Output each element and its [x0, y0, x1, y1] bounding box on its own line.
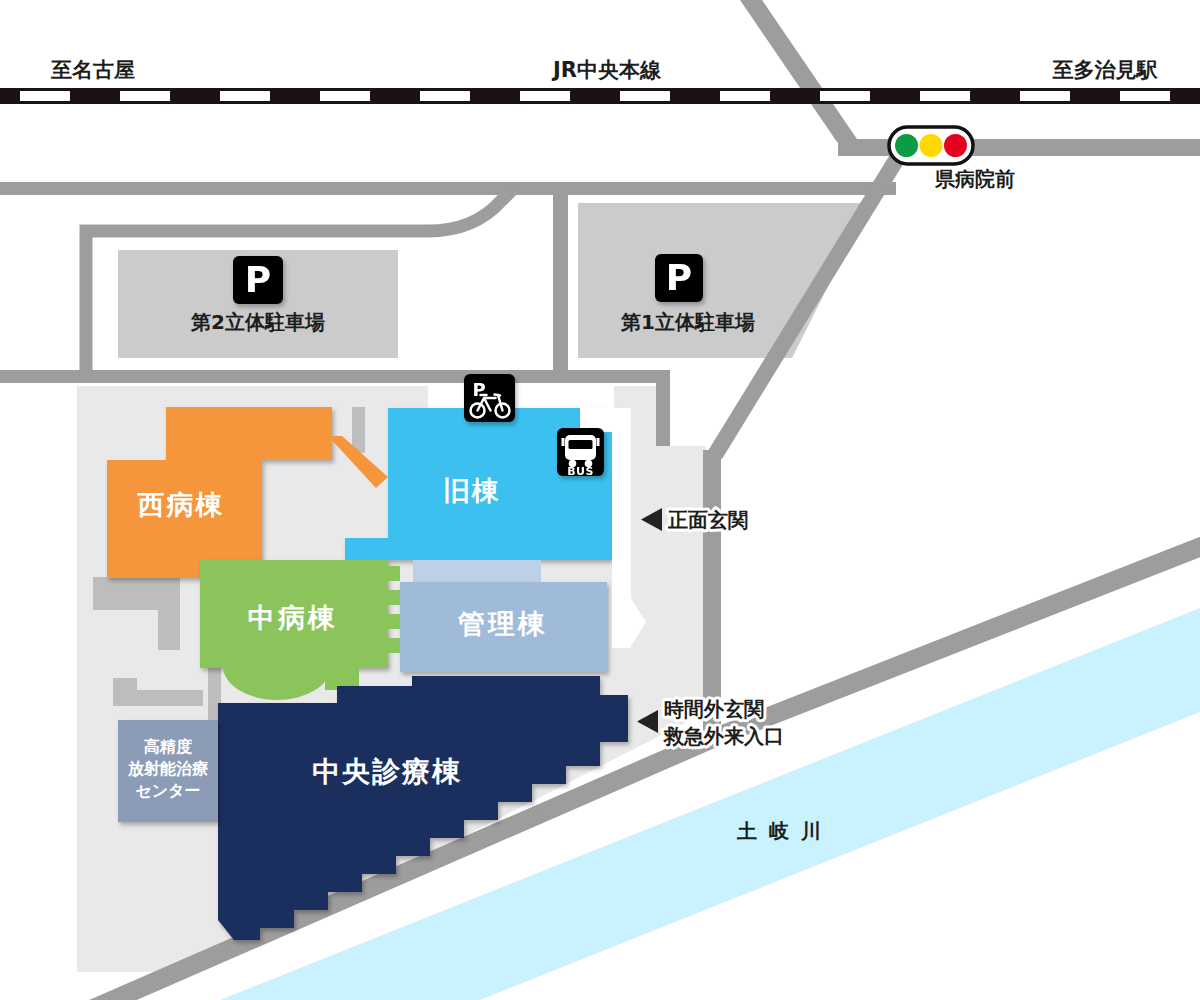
parking2-icon-letter: P	[245, 259, 271, 300]
middle-ward-tooth-2	[386, 590, 400, 605]
label-old-building: 旧棟	[443, 475, 501, 506]
building-admin-annex	[413, 560, 541, 582]
signal-yellow-lamp	[920, 134, 943, 157]
parking2-icon: P	[233, 256, 283, 304]
label-radiation-center-line2: 放射能治療	[127, 759, 209, 778]
aux-building-2	[93, 577, 180, 610]
label-middle-ward: 中病棟	[248, 602, 338, 633]
bicycle-parking-icon: P	[464, 374, 515, 422]
label-radiation-center-line3: センター	[135, 781, 200, 800]
bus-mirror-left	[562, 438, 565, 446]
signal-green-lamp	[895, 134, 918, 157]
label-parking-1: 第1立体駐車場	[620, 310, 755, 334]
parking1-icon-letter: P	[666, 257, 692, 298]
road-campus-north	[0, 370, 670, 383]
aux-building-3	[158, 610, 180, 650]
road-north-horizontal	[0, 182, 896, 195]
road-between-parkings	[553, 182, 568, 383]
label-kenbyoin-mae: 県病院前	[934, 167, 1015, 191]
aux-building-1	[352, 407, 365, 453]
hospital-access-map: P P P BUS 至名古屋 JR中央本線 至多治見駅 県病院前 第2立体駐車場…	[0, 0, 1200, 1000]
road-campus-north-stub	[656, 370, 670, 446]
middle-ward-tooth-3	[386, 614, 400, 629]
middle-ward-tooth-4	[386, 638, 400, 653]
bus-stop-icon-label: BUS	[567, 465, 594, 478]
aux-building-4	[113, 678, 137, 706]
label-central-clinic: 中央診療棟	[312, 755, 462, 788]
label-toki-river: 土岐川	[736, 819, 833, 843]
road-rail-crossing-diagonal	[740, 0, 859, 142]
entrance-walkway	[612, 408, 631, 648]
railway-line	[0, 88, 1200, 104]
label-to-tajimi-station: 至多治見駅	[1053, 58, 1159, 82]
label-radiation-center-line1: 高精度	[144, 737, 192, 756]
label-main-entrance: 正面玄関	[667, 508, 748, 532]
aux-building-5	[137, 690, 203, 706]
label-afterhours-entrance: 時間外玄関	[664, 697, 764, 721]
label-to-nagoya: 至名古屋	[51, 58, 135, 82]
label-west-ward: 西病棟	[137, 489, 225, 520]
label-admin-building: 管理棟	[457, 608, 548, 639]
bus-mirror-right	[597, 438, 600, 446]
parking1-icon: P	[655, 254, 703, 302]
traffic-signal-icon	[889, 127, 973, 164]
bus-windshield	[569, 440, 593, 449]
bus-stop-icon: BUS	[557, 428, 604, 478]
label-parking-2: 第2立体駐車場	[190, 310, 325, 334]
signal-red-lamp	[944, 134, 967, 157]
label-emergency-entrance: 救急外来入口	[663, 724, 784, 748]
label-jr-chuo-line: JR中央本線	[551, 58, 662, 82]
middle-ward-tooth-1	[386, 566, 400, 581]
